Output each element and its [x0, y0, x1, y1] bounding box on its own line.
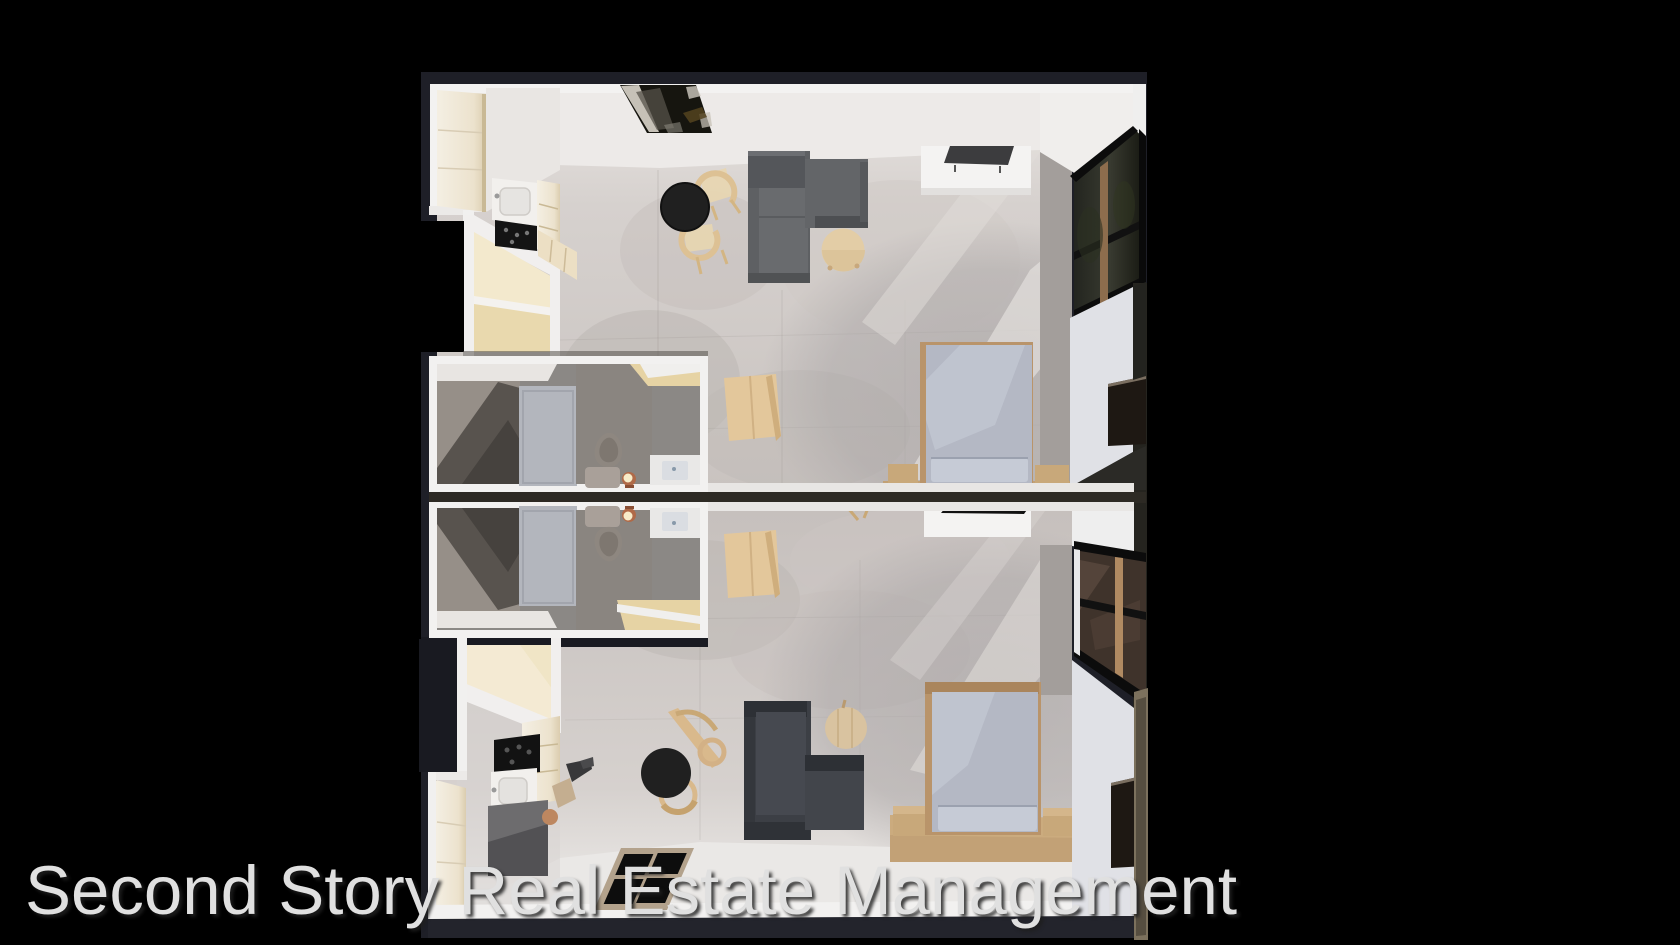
- svg-text:Second Story Real Estate Manag: Second Story Real Estate Management: [25, 852, 1237, 929]
